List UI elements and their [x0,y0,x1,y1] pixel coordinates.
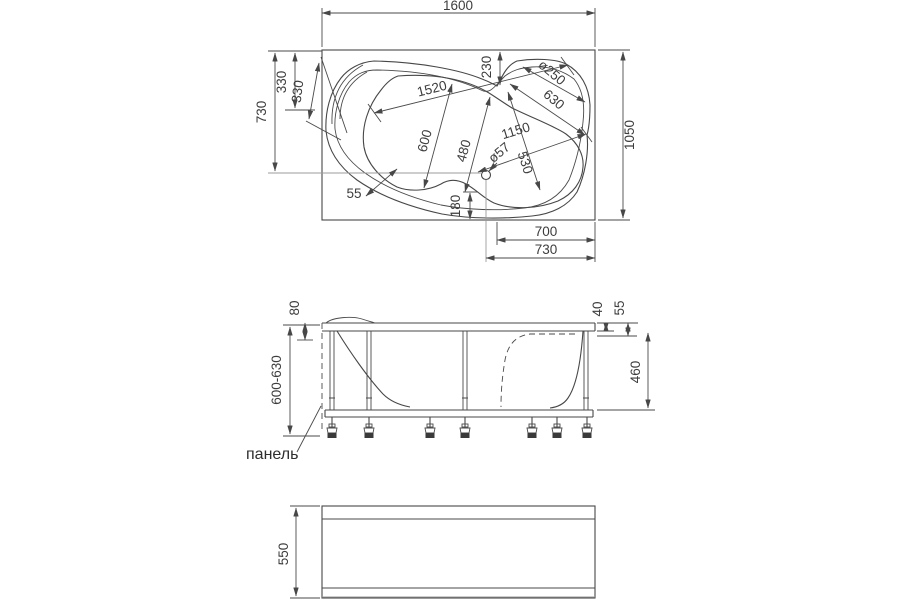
dim-1150: 1150 [500,119,532,142]
tub-profile-hidden [501,334,575,407]
dim-line-530 [508,92,540,190]
dim-460: 460 [628,361,643,384]
dim-730-left: 730 [254,101,269,124]
panel-leader [297,406,321,452]
dim-57: ø57 [485,139,512,165]
dim-480: 480 [453,138,473,164]
headrest-arc [332,65,363,124]
dim-600-630: 600-630 [269,355,284,405]
dim-700: 700 [535,224,558,239]
plan-view: 1600 1050 730 330 330 1520 230 ø250 630 [254,0,637,262]
headrest-arc-2 [340,72,367,119]
headrest-bump [326,317,375,323]
foot [364,417,374,438]
foot [425,417,435,438]
dim-730-bottom: 730 [535,242,558,257]
drain-hole [482,171,491,180]
foot [460,417,470,438]
foot [552,417,562,438]
panel-outline [322,506,595,598]
foot [527,417,537,438]
side-view: панель 80 600-630 40 55 460 [246,300,655,463]
tub-profile-left [337,331,410,407]
dim-180: 180 [448,195,463,218]
dim-530: 530 [515,150,536,176]
dim-1050: 1050 [622,120,637,150]
frame-posts [329,331,589,410]
dim-330: 330 [274,71,289,94]
dim-230: 230 [479,56,494,79]
bath-outer-outline [326,59,590,218]
panel-label: панель [246,446,298,463]
foot [327,417,337,438]
tub-profile-right [550,331,583,408]
dim-55-rim: 55 [346,186,361,201]
dim-line-330-diag [309,63,319,119]
dim-600: 600 [414,128,434,154]
dim-550: 550 [276,543,291,566]
dim-1600: 1600 [443,0,473,13]
dim-80: 80 [287,300,302,315]
drawing-sheet: 1600 1050 730 330 330 1520 230 ø250 630 [0,0,900,600]
adjustable-feet [327,417,592,438]
dim-330-diag: 330 [289,79,307,103]
front-panel-view: 550 [276,506,595,598]
technical-drawing: 1600 1050 730 330 330 1520 230 ø250 630 [0,0,900,600]
dim-55-side: 55 [612,300,627,315]
dim-630: 630 [540,87,567,113]
dim-40: 40 [590,301,605,316]
foot [582,417,592,438]
dim-line-1520 [374,65,568,113]
